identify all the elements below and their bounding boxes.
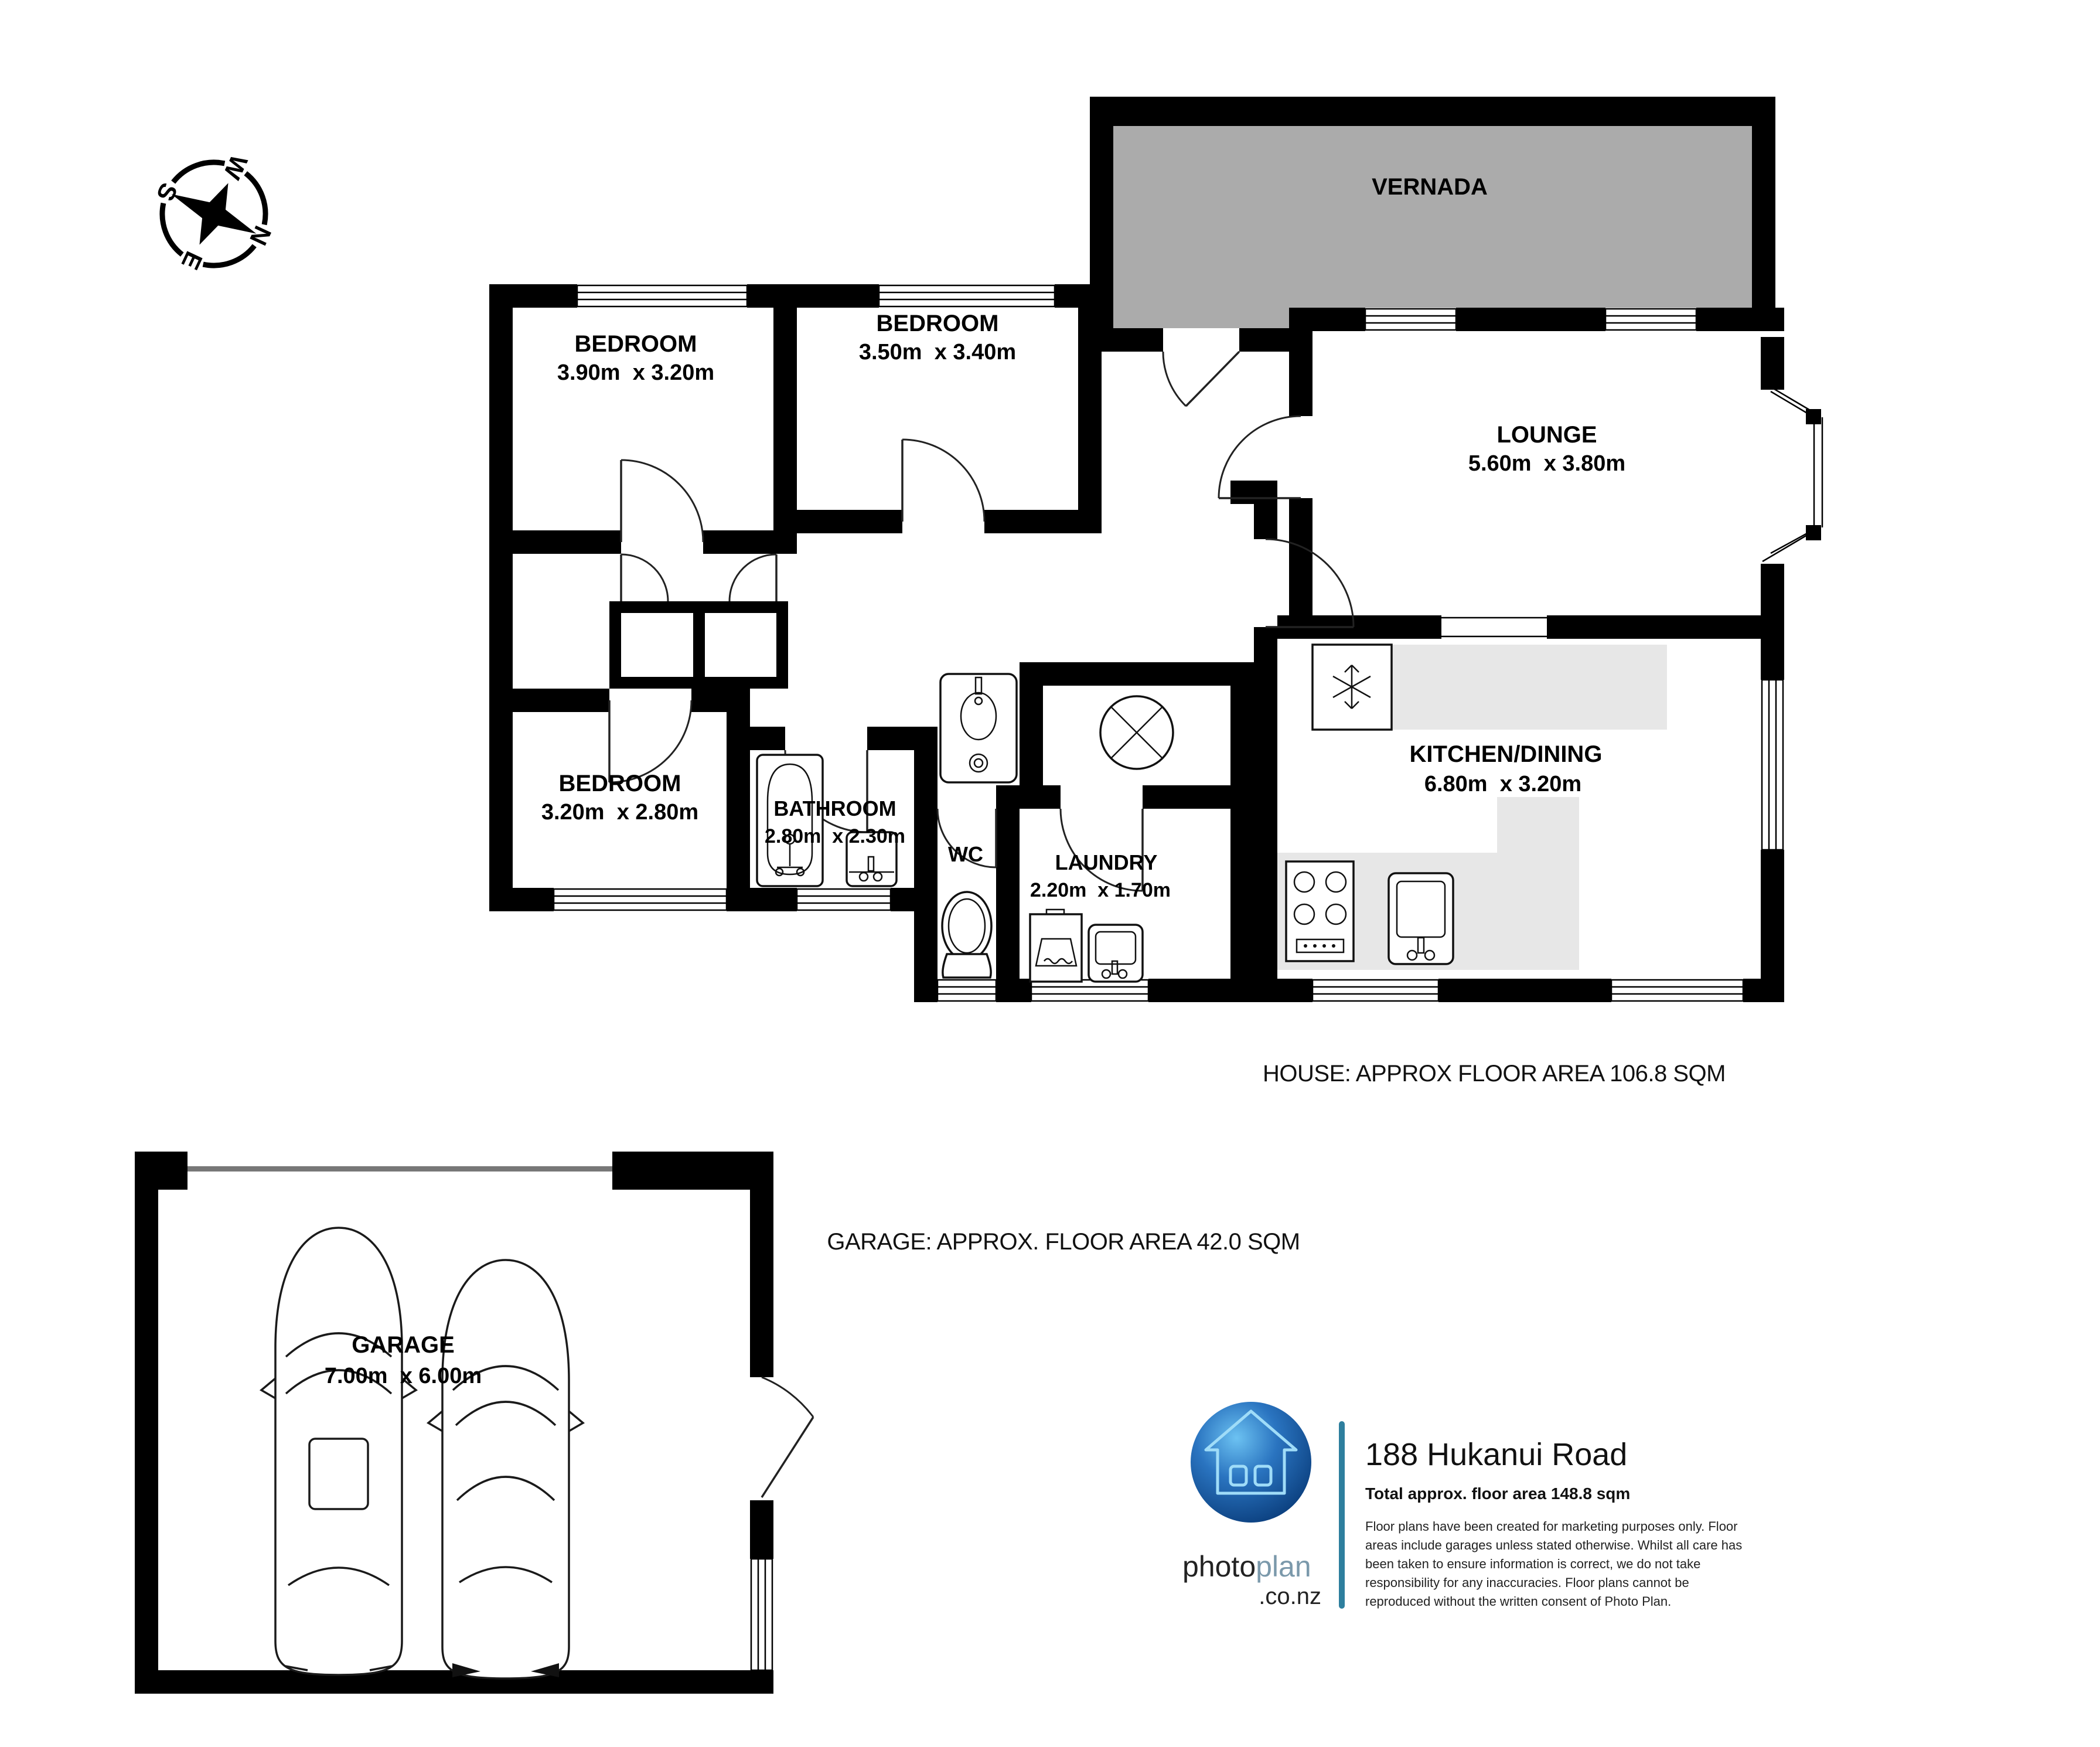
brand-plan-text: plan <box>1256 1550 1311 1583</box>
verandah-label: VERNADA <box>1372 174 1488 200</box>
bedroom2-dims: 3.50m x 3.40m <box>859 340 1016 365</box>
property-address: 188 Hukanui Road <box>1365 1437 1627 1472</box>
verandah-floor <box>1113 126 1752 328</box>
window <box>1762 680 1783 850</box>
bathroom-label: BATHROOM <box>773 796 896 820</box>
compass-rose: N E S W <box>129 129 300 295</box>
bedroom3-label: BEDROOM <box>559 771 681 796</box>
laundry-dims: 2.20m x 1.70m <box>1030 879 1171 901</box>
kitchen-fixtures <box>1277 645 1667 970</box>
bathtub-icon <box>757 755 823 886</box>
disclaimer-line: been taken to ensure information is corr… <box>1365 1557 1700 1571</box>
disclaimer-line: reproduced without the written consent o… <box>1365 1594 1671 1609</box>
window <box>554 889 727 910</box>
laundry-tub-icon <box>1089 925 1143 982</box>
garage-door-line <box>187 1166 612 1172</box>
hall-basin-icon <box>940 674 1017 782</box>
entry-door <box>1163 352 1239 406</box>
car-icon <box>428 1260 583 1678</box>
bedroom3-door <box>609 700 691 782</box>
laundry-label: LAUNDRY <box>1055 850 1158 874</box>
garage-dims: 7.00m x 6.00m <box>325 1364 482 1388</box>
bedroom1-dims: 3.90m x 3.20m <box>557 360 714 385</box>
floorplan-page: N E S W VERNADA <box>0 0 2100 1747</box>
window <box>1031 980 1148 1001</box>
bedroom2-label: BEDROOM <box>877 311 999 336</box>
window <box>1365 309 1456 330</box>
brand-domain-text: .co.nz <box>1259 1583 1321 1609</box>
car-icon <box>261 1228 416 1675</box>
toilet-icon <box>942 892 991 978</box>
window <box>1312 980 1438 1001</box>
lounge-dims: 5.60m x 3.80m <box>1468 451 1625 476</box>
total-floor-area: Total approx. floor area 148.8 sqm <box>1365 1484 1630 1503</box>
cased-opening <box>1441 618 1547 636</box>
garage-cars <box>261 1228 583 1678</box>
brand-wordmark: photoplan <box>1182 1550 1311 1583</box>
compass-south-label: S <box>151 179 183 205</box>
garage-label: GARAGE <box>352 1332 455 1358</box>
footer-brand-block: photoplan .co.nz 188 Hukanui Road Total … <box>1182 1402 1742 1609</box>
bedroom2-door <box>902 440 984 522</box>
floorplan-drawing: N E S W VERNADA <box>0 0 2100 1747</box>
kitchen-label: KITCHEN/DINING <box>1410 741 1603 767</box>
closet-door-right <box>729 554 776 601</box>
house-area-label: HOUSE: APPROX FLOOR AREA 106.8 SQM <box>1263 1061 1726 1087</box>
disclaimer-line: responsibility for any inaccuracies. Flo… <box>1365 1575 1689 1590</box>
window <box>879 285 1055 307</box>
stove-icon <box>1286 861 1354 961</box>
closet-door-left <box>621 554 668 601</box>
hot-water-cylinder-icon <box>1100 696 1173 769</box>
compass-north-label: N <box>244 222 277 250</box>
kitchen-dims: 6.80m x 3.20m <box>1424 772 1581 796</box>
disclaimer-line: areas include garages unless stated othe… <box>1365 1538 1742 1552</box>
brand-photo-text: photo <box>1182 1550 1256 1583</box>
bedroom1-door <box>621 460 703 542</box>
kitchen-counter-island <box>1497 797 1579 970</box>
washing-machine-icon <box>1030 910 1082 982</box>
compass-west-label: W <box>218 151 253 183</box>
disclaimer: Floor plans have been created for market… <box>1365 1519 1742 1609</box>
window <box>577 285 747 307</box>
footer-divider <box>1339 1421 1345 1609</box>
window <box>937 980 996 1001</box>
window <box>1605 309 1696 330</box>
garage-area-label: GARAGE: APPROX. FLOOR AREA 42.0 SQM <box>827 1229 1300 1255</box>
fridge-icon <box>1312 645 1392 730</box>
disclaimer-line: Floor plans have been created for market… <box>1365 1519 1738 1534</box>
wc-label: WC <box>948 842 983 866</box>
kitchen-sink-icon <box>1389 873 1453 964</box>
window <box>1611 980 1743 1001</box>
kitchen-counter-top <box>1392 645 1667 730</box>
bedroom3-dims: 3.20m x 2.80m <box>541 800 698 825</box>
window <box>797 889 891 910</box>
garage-side-door <box>762 1377 813 1497</box>
lounge-label: LOUNGE <box>1496 422 1597 448</box>
laundry-door <box>1061 809 1143 891</box>
window <box>751 1559 772 1670</box>
photoplan-logo-sphere <box>1191 1402 1311 1523</box>
bathroom-dims: 2.80m x 2.30m <box>765 825 905 847</box>
bedroom1-label: BEDROOM <box>575 331 697 357</box>
